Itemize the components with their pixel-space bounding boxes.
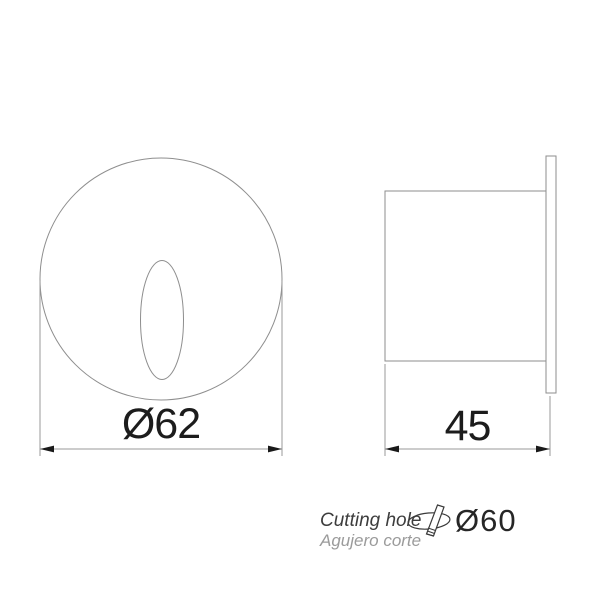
side-depth-dimension-label: 45 bbox=[385, 405, 550, 448]
cutting-hole-label-es: Agujero corte bbox=[320, 532, 421, 551]
housing-body-outline bbox=[385, 191, 546, 361]
cutting-hole-diameter-label: Ø60 bbox=[455, 505, 517, 536]
front-diameter-dimension-label: Ø62 bbox=[40, 403, 282, 446]
faceplate-circle bbox=[40, 158, 282, 400]
light-opening-ellipse bbox=[141, 261, 184, 380]
dimension-arrow-left bbox=[40, 446, 54, 453]
mounting-flange-outline bbox=[546, 156, 556, 393]
technical-drawing-canvas: Ø62 45 Cutting hole Agujero corte Ø60 bbox=[0, 0, 600, 600]
cutting-hole-label-en: Cutting hole bbox=[320, 511, 421, 532]
dimension-arrow-right bbox=[268, 446, 282, 453]
